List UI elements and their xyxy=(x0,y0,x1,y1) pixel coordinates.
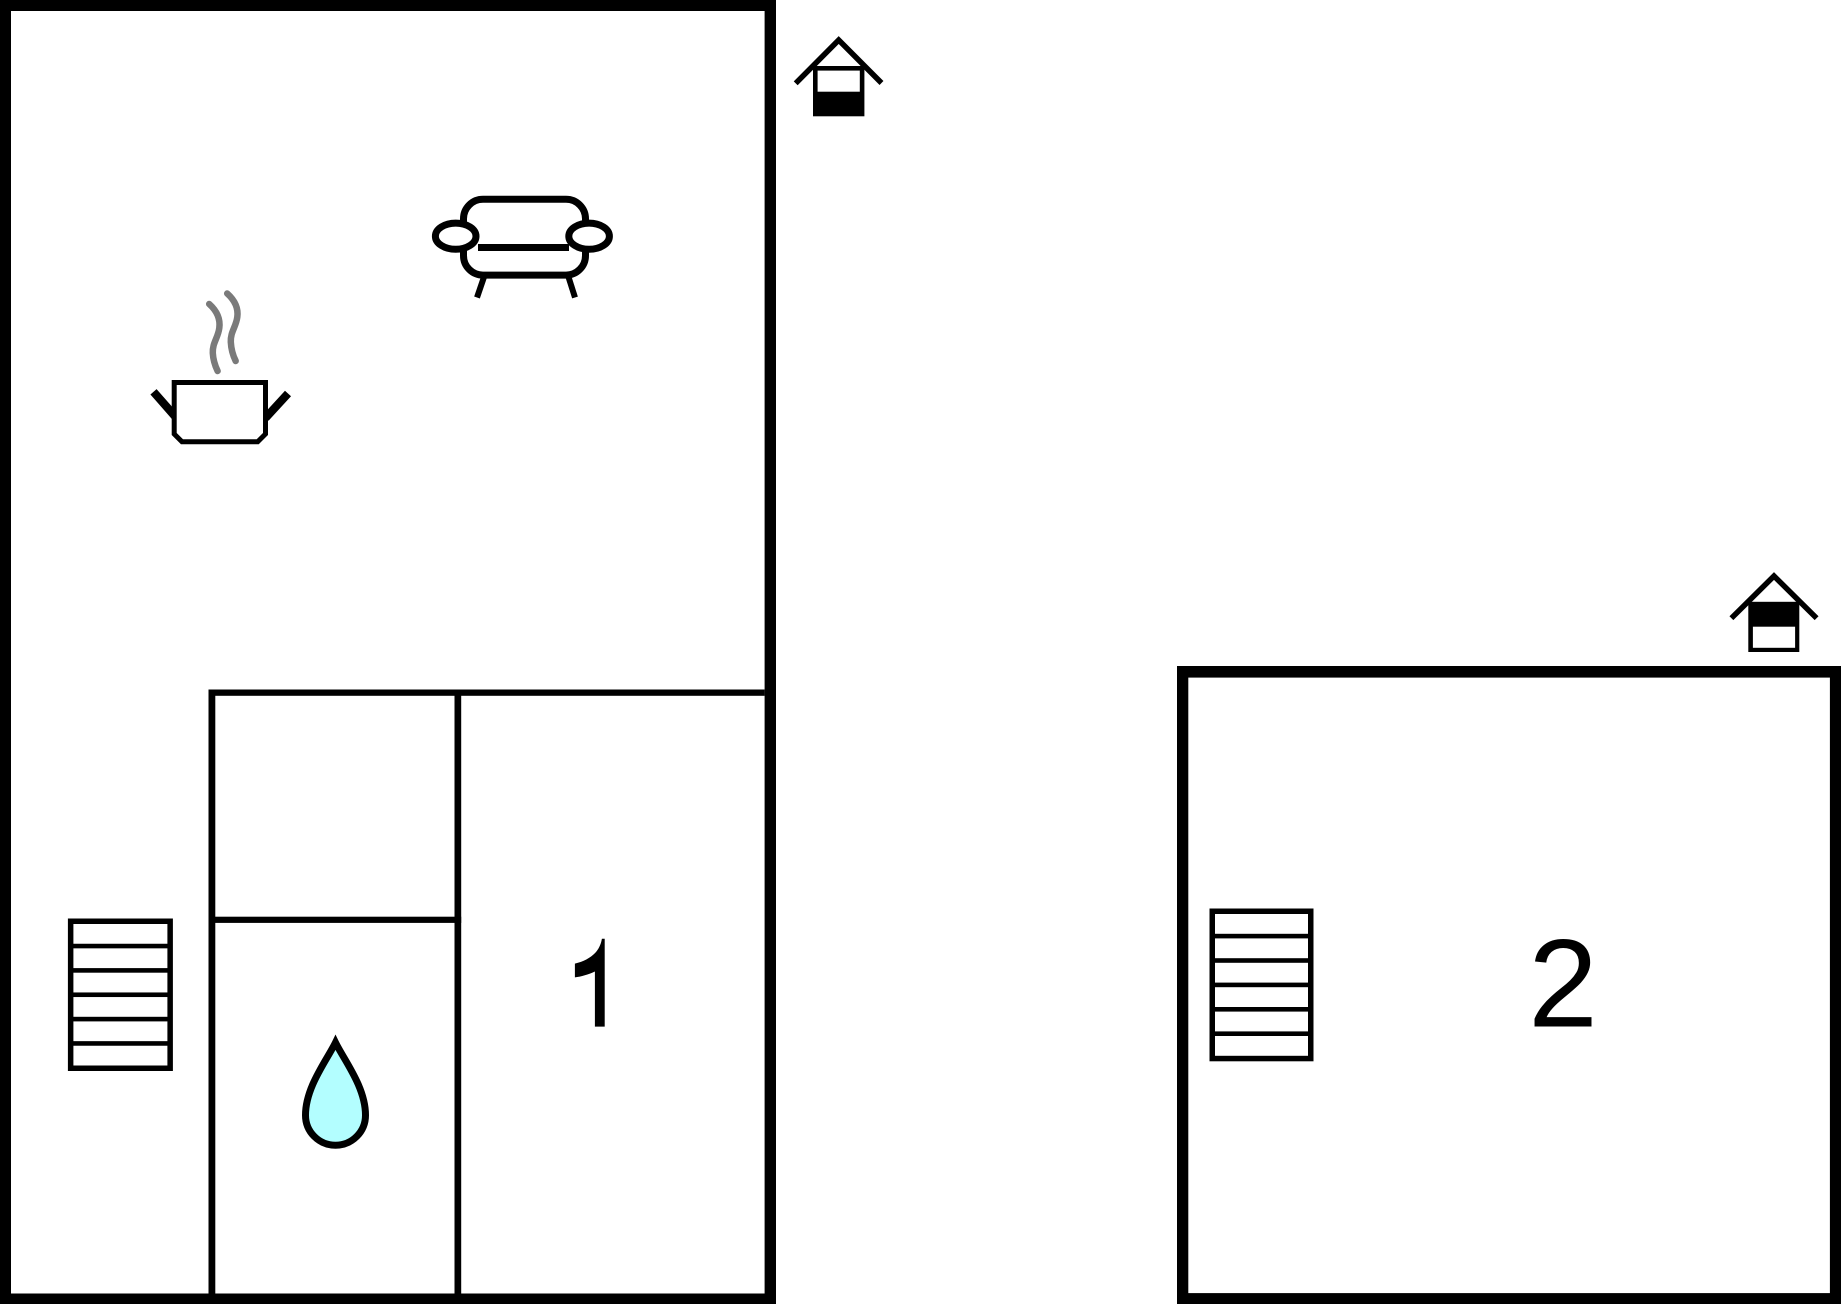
svg-text:2: 2 xyxy=(1528,915,1598,1054)
